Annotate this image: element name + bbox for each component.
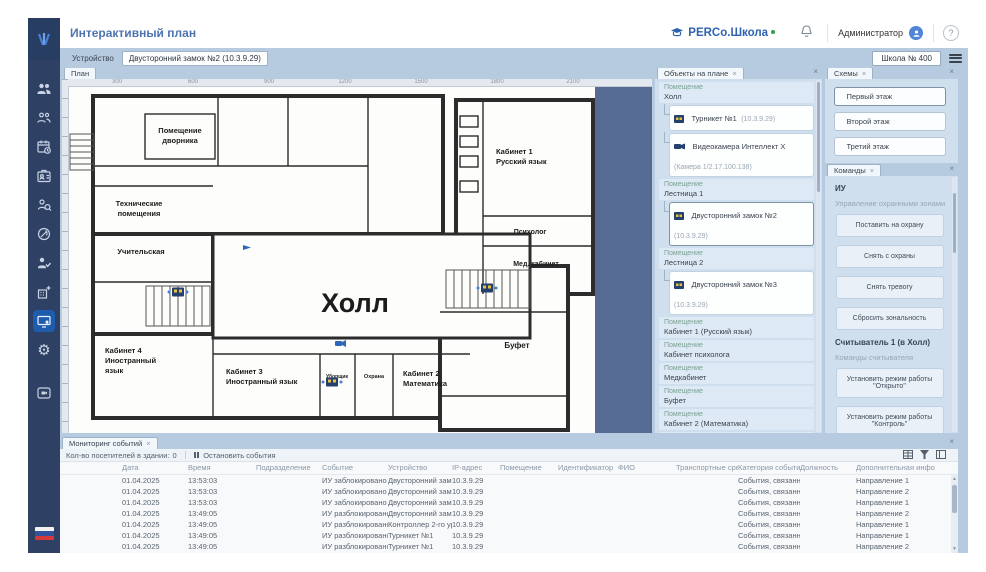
room-type: Помещение bbox=[664, 342, 809, 350]
page-title: Интерактивный план bbox=[70, 26, 196, 40]
cell-time: 13:49:05 bbox=[188, 530, 256, 541]
cell-transport bbox=[676, 475, 738, 486]
russian-flag-icon[interactable] bbox=[35, 527, 54, 540]
device-item-camera[interactable]: Видеокамера Интеллект Х (Камера 1/2.17.1… bbox=[669, 133, 814, 177]
device-address: (10.3.9.29) bbox=[674, 302, 708, 309]
cell-division bbox=[256, 530, 322, 541]
circle-slash-icon[interactable] bbox=[33, 223, 55, 245]
device-item-turnstile-1[interactable]: Турникет №1 (10.3.9.29) bbox=[669, 105, 814, 131]
cell-position bbox=[800, 519, 856, 530]
cell-date: 01.04.2025 bbox=[122, 519, 188, 530]
room-group[interactable]: Помещение Кабинет психолога bbox=[659, 340, 814, 361]
cell-division bbox=[256, 486, 322, 497]
sidebar: ⚙ bbox=[28, 18, 60, 553]
school-select-button[interactable]: Школа № 400 bbox=[872, 51, 941, 66]
cell-position bbox=[800, 541, 856, 552]
events-infobar: Кол-во посетителей в здании: 0 Остановит… bbox=[60, 449, 958, 462]
cell-position bbox=[800, 508, 856, 519]
table-row[interactable]: 01.04.2025 13:53:03 ИУ заблокировано Дву… bbox=[60, 497, 958, 508]
cell-transport bbox=[676, 530, 738, 541]
calendar-clock-icon[interactable] bbox=[33, 136, 55, 158]
ruler-tick: 900 bbox=[264, 79, 274, 86]
cell-room bbox=[500, 519, 558, 530]
col-header[interactable]: Категория событий bbox=[738, 462, 800, 474]
toolbar: Устройство Двусторонний замок №2 (10.3.9… bbox=[60, 48, 968, 68]
cell-device: Двусторонний замок №2 bbox=[388, 497, 452, 508]
status-dot bbox=[771, 30, 775, 34]
col-header[interactable]: Дополнительная инфо bbox=[856, 462, 958, 474]
cell-info: Направление 1 bbox=[856, 497, 958, 508]
person-search-icon[interactable] bbox=[33, 194, 55, 216]
close-icon[interactable]: × bbox=[949, 437, 954, 446]
tab-commands[interactable]: Команды × bbox=[827, 164, 881, 176]
help-button[interactable]: ? bbox=[943, 25, 959, 41]
cell-position bbox=[800, 486, 856, 497]
device-address: (10.3.9.29) bbox=[674, 233, 708, 240]
cell-identifier bbox=[558, 486, 618, 497]
mode-control-button[interactable]: Установить режим работы "Контроль" bbox=[836, 406, 944, 433]
cell-fio bbox=[618, 530, 676, 541]
cell-category: События, связанные с bbox=[738, 497, 800, 508]
device-name: Видеокамера Интеллект Х bbox=[692, 142, 785, 151]
room-label: Буфет bbox=[504, 341, 529, 350]
events-table: Дата Время Подразделение Событие Устройс… bbox=[60, 462, 958, 552]
cell-device: Турникет №1 bbox=[388, 541, 452, 552]
gear-icon[interactable]: ⚙ bbox=[33, 339, 55, 361]
room-type: Помещение bbox=[664, 250, 809, 258]
brand-label: PERCo.Школа bbox=[688, 27, 768, 39]
commands-panel: Команды × × ИУ Управление охранными зона… bbox=[825, 163, 958, 433]
room-group[interactable]: Помещение Кабинет 2 (Математика) bbox=[659, 409, 814, 430]
cell-identifier bbox=[558, 497, 618, 508]
scheme-floor-3[interactable]: Третий этаж bbox=[834, 137, 946, 156]
arm-button[interactable]: Поставить на охрану bbox=[836, 214, 944, 237]
room-group[interactable]: Помещение Холл bbox=[659, 82, 814, 103]
cell-time: 13:49:05 bbox=[188, 541, 256, 552]
device-address: (Камера 1/2.17.100.138) bbox=[674, 164, 752, 171]
cell-date: 01.04.2025 bbox=[122, 486, 188, 497]
room-type: Помещение bbox=[664, 84, 809, 92]
cell-category: События, связанные с bbox=[738, 508, 800, 519]
cell-position bbox=[800, 475, 856, 486]
bell-icon[interactable] bbox=[800, 24, 813, 43]
scroll-down-icon[interactable]: ▼ bbox=[951, 546, 958, 552]
video-frame-icon[interactable] bbox=[33, 382, 55, 404]
scroll-up-icon[interactable]: ▲ bbox=[951, 476, 958, 482]
close-icon[interactable]: × bbox=[949, 67, 954, 76]
col-header[interactable]: Транспортные средст bbox=[676, 462, 738, 474]
cell-time: 13:53:03 bbox=[188, 497, 256, 508]
room-group[interactable]: Помещение Буфет bbox=[659, 386, 814, 407]
room-group[interactable]: Помещение Кабинет охраны bbox=[659, 432, 814, 433]
cell-device: Двусторонний замок №2 bbox=[388, 508, 452, 519]
cell-event: ИУ заблокировано bbox=[322, 497, 388, 508]
turnstile-icon bbox=[674, 207, 684, 225]
device-item-lock-2-selected[interactable]: Двусторонний замок №2 (10.3.9.29) bbox=[669, 202, 814, 246]
cell-transport bbox=[676, 519, 738, 530]
monitor-user-icon[interactable] bbox=[33, 310, 55, 332]
cell-ip: 10.3.9.29 bbox=[452, 486, 500, 497]
close-icon[interactable]: × bbox=[949, 164, 954, 173]
cell-room bbox=[500, 530, 558, 541]
id-badge-icon[interactable] bbox=[33, 165, 55, 187]
cell-event: ИУ разблокировано bbox=[322, 530, 388, 541]
cell-category: События, связанные с bbox=[738, 541, 800, 552]
room-group[interactable]: Помещение Кабинет 1 (Русский язык) bbox=[659, 317, 814, 338]
room-label: Кабинет 1 bbox=[496, 147, 533, 156]
table-row[interactable]: 01.04.2025 13:49:05 ИУ разблокировано Ко… bbox=[60, 519, 958, 530]
ruler-tick: 600 bbox=[188, 79, 198, 86]
table-row[interactable]: 01.04.2025 13:53:03 ИУ заблокировано Дву… bbox=[60, 486, 958, 497]
tab-plan-label: План bbox=[71, 69, 89, 78]
room-name: Холл bbox=[664, 92, 809, 101]
cell-info: Направление 2 bbox=[856, 541, 958, 552]
room-label: Мед. кабинет bbox=[513, 260, 559, 268]
room-type: Помещение bbox=[664, 365, 809, 373]
cell-division bbox=[256, 519, 322, 530]
objects-scrollbar[interactable] bbox=[816, 80, 821, 432]
horizontal-ruler: 300 600 900 1200 1500 1800 2100 bbox=[68, 79, 652, 87]
cell-room bbox=[500, 497, 558, 508]
cell-category: События, связанные с bbox=[738, 530, 800, 541]
turnstile-icon bbox=[674, 110, 684, 128]
cell-event: ИУ разблокировано bbox=[322, 508, 388, 519]
room-name: Буфет bbox=[664, 396, 809, 405]
brand[interactable]: PERCo.Школа bbox=[670, 26, 778, 41]
col-header[interactable]: Дата bbox=[122, 462, 188, 474]
room-type: Помещение bbox=[664, 319, 809, 327]
room-type: Помещение bbox=[664, 411, 809, 419]
cell-event: ИУ разблокировано bbox=[322, 541, 388, 552]
cell-category: События, связанные с bbox=[738, 486, 800, 497]
close-icon[interactable]: × bbox=[146, 439, 150, 448]
cell-event: ИУ заблокировано bbox=[322, 486, 388, 497]
tab-commands-label: Команды bbox=[834, 166, 866, 175]
employees-icon[interactable] bbox=[33, 78, 55, 100]
scheme-floor-2[interactable]: Второй этаж bbox=[834, 112, 946, 131]
room-type: Помещение bbox=[664, 388, 809, 396]
room-label: Кабинет 4 bbox=[105, 346, 142, 355]
room-name: Кабинет 2 (Математика) bbox=[664, 419, 809, 428]
close-icon[interactable]: × bbox=[813, 67, 818, 76]
objects-list: Помещение Холл Турникет №1 (10.3.9.29) В… bbox=[655, 79, 822, 433]
user-menu[interactable]: Администратор bbox=[828, 26, 933, 40]
cell-info: Направление 2 bbox=[856, 508, 958, 519]
cell-room bbox=[500, 541, 558, 552]
cell-identifier bbox=[558, 541, 618, 552]
cell-ip: 10.3.9.29 bbox=[452, 519, 500, 530]
cell-time: 13:49:05 bbox=[188, 508, 256, 519]
close-icon[interactable]: × bbox=[862, 69, 866, 78]
room-name: Лестница 2 bbox=[664, 258, 809, 267]
ruler-tick: 300 bbox=[112, 79, 122, 86]
room-group[interactable]: Помещение Лестница 1 bbox=[659, 179, 814, 200]
cell-transport bbox=[676, 497, 738, 508]
cell-event: ИУ разблокировано bbox=[322, 519, 388, 530]
cell-device: Двусторонний замок №2 bbox=[388, 486, 452, 497]
cell-identifier bbox=[558, 530, 618, 541]
plan-canvas[interactable]: Помещение дворника Технические помещения… bbox=[62, 79, 652, 433]
room-group[interactable]: Помещение Лестница 2 bbox=[659, 248, 814, 269]
device-label: Устройство bbox=[72, 54, 114, 63]
cell-time: 13:53:03 bbox=[188, 486, 256, 497]
close-icon[interactable]: × bbox=[870, 166, 874, 175]
room-label: Психолог bbox=[514, 229, 547, 236]
cell-fio bbox=[618, 541, 676, 552]
cell-division bbox=[256, 508, 322, 519]
turnstile-icon bbox=[674, 276, 684, 294]
person-check-icon[interactable] bbox=[33, 252, 55, 274]
cell-ip: 10.3.9.29 bbox=[452, 497, 500, 508]
room-label: Кабинет 2 bbox=[403, 369, 440, 378]
cell-info: Направление 1 bbox=[856, 475, 958, 486]
room-label: язык bbox=[105, 366, 124, 375]
cell-device: Турникет №1 bbox=[388, 530, 452, 541]
cell-time: 13:53:03 bbox=[188, 475, 256, 486]
tab-schemes-label: Схемы bbox=[834, 69, 858, 78]
room-group[interactable]: Помещение Медкабинет bbox=[659, 363, 814, 384]
col-header[interactable]: Помещение bbox=[500, 462, 558, 474]
camera-icon bbox=[674, 138, 685, 156]
cell-fio bbox=[618, 508, 676, 519]
building-plus-icon[interactable] bbox=[33, 281, 55, 303]
tab-events-label: Мониторинг событий bbox=[69, 439, 142, 448]
col-header[interactable]: Идентификатор bbox=[558, 462, 618, 474]
table-row[interactable]: 01.04.2025 13:49:05 ИУ разблокировано Ту… bbox=[60, 530, 958, 541]
device-name: Турникет №1 bbox=[691, 114, 736, 123]
cell-fio bbox=[618, 519, 676, 530]
close-icon[interactable]: × bbox=[732, 69, 736, 78]
floor-plan[interactable]: Помещение дворника Технические помещения… bbox=[68, 86, 595, 433]
ruler-tick: 1500 bbox=[414, 79, 427, 86]
cell-transport bbox=[676, 508, 738, 519]
room-label: Иностранный bbox=[105, 356, 156, 365]
reader-label: Команды считывателя bbox=[835, 353, 946, 362]
visitors-count: 0 bbox=[173, 451, 177, 460]
cell-device: Двусторонний замок №2 bbox=[388, 475, 452, 486]
table-row[interactable]: 01.04.2025 13:49:05 ИУ разблокировано Дв… bbox=[60, 508, 958, 519]
cell-ip: 10.3.9.29 bbox=[452, 541, 500, 552]
visitors-icon[interactable] bbox=[33, 107, 55, 129]
camera-marker[interactable] bbox=[335, 340, 346, 347]
tab-plan[interactable]: План bbox=[64, 67, 96, 79]
cell-position bbox=[800, 530, 856, 541]
cell-ip: 10.3.9.29 bbox=[452, 475, 500, 486]
plan-panel: План bbox=[62, 66, 652, 433]
hall-label: Холл bbox=[321, 288, 389, 318]
menu-icon[interactable] bbox=[949, 54, 962, 63]
cell-room bbox=[500, 475, 558, 486]
pause-icon bbox=[194, 452, 200, 458]
graduation-cap-icon bbox=[670, 26, 684, 41]
cell-category: События, связанные с bbox=[738, 519, 800, 530]
visitors-label: Кол-во посетителей в здании: bbox=[66, 451, 170, 460]
cell-transport bbox=[676, 541, 738, 552]
cell-fio bbox=[618, 475, 676, 486]
objects-panel: Объекты на плане × × Помещение Холл Турн… bbox=[655, 66, 822, 433]
cell-division bbox=[256, 475, 322, 486]
col-header[interactable]: IP-адрес bbox=[452, 462, 500, 474]
table-row[interactable]: 01.04.2025 13:53:03 ИУ заблокировано Дву… bbox=[60, 475, 958, 486]
device-address: (10.3.9.29) bbox=[741, 116, 775, 123]
cell-info: Направление 1 bbox=[856, 530, 958, 541]
cell-identifier bbox=[558, 519, 618, 530]
events-panel: Мониторинг событий × × Кол-во посетителе… bbox=[60, 436, 958, 553]
cell-device: Контроллер 2-го уров bbox=[388, 519, 452, 530]
room-label: Русский язык bbox=[496, 157, 547, 166]
user-name: Администратор bbox=[838, 28, 903, 38]
vertical-ruler bbox=[62, 79, 69, 433]
tab-schemes[interactable]: Схемы × bbox=[827, 67, 873, 79]
room-name: Лестница 1 bbox=[664, 189, 809, 198]
device-name: Двусторонний замок №3 bbox=[691, 280, 776, 289]
cell-date: 01.04.2025 bbox=[122, 541, 188, 552]
cell-transport bbox=[676, 486, 738, 497]
col-header[interactable]: Должность bbox=[800, 462, 856, 474]
table-view-icon[interactable] bbox=[903, 450, 913, 461]
room-label: помещения bbox=[118, 209, 161, 218]
device-chip[interactable]: Двусторонний замок №2 (10.3.9.29) bbox=[122, 51, 268, 66]
cell-fio bbox=[618, 497, 676, 508]
col-header[interactable]: ФИО bbox=[618, 462, 676, 474]
table-row[interactable]: 01.04.2025 13:49:05 ИУ разблокировано Ту… bbox=[60, 541, 958, 552]
tab-objects-label: Объекты на плане bbox=[664, 69, 728, 78]
room-label: Помещение bbox=[158, 126, 201, 135]
cell-division bbox=[256, 497, 322, 508]
cell-position bbox=[800, 497, 856, 508]
cell-info: Направление 2 bbox=[856, 486, 958, 497]
tab-objects[interactable]: Объекты на плане × bbox=[657, 67, 744, 79]
commands-scrollbar[interactable] bbox=[952, 177, 957, 432]
zones-label: Управление охранными зонами bbox=[835, 199, 946, 208]
cell-date: 01.04.2025 bbox=[122, 497, 188, 508]
ruler-tick: 1200 bbox=[338, 79, 351, 86]
room-name: Кабинет 1 (Русский язык) bbox=[664, 327, 809, 336]
room-label: Иностранный язык bbox=[226, 377, 298, 386]
ruler-tick: 2100 bbox=[566, 79, 579, 86]
cell-identifier bbox=[558, 475, 618, 486]
reader-heading: Считыватель 1 (в Холл) bbox=[835, 338, 946, 347]
cell-time: 13:49:05 bbox=[188, 519, 256, 530]
cell-ip: 10.3.9.29 bbox=[452, 530, 500, 541]
schemes-panel: Схемы × × Первый этаж Второй этаж Третий… bbox=[825, 66, 958, 163]
cell-fio bbox=[618, 486, 676, 497]
header: Интерактивный план PERCo.Школа bbox=[60, 18, 968, 48]
cell-date: 01.04.2025 bbox=[122, 530, 188, 541]
scheme-floor-1[interactable]: Первый этаж bbox=[834, 87, 946, 106]
events-rows: 01.04.2025 13:53:03 ИУ заблокировано Дву… bbox=[60, 475, 958, 552]
room-label: Математика bbox=[403, 379, 448, 388]
right-column: Схемы × × Первый этаж Второй этаж Третий… bbox=[825, 66, 958, 433]
device-item-lock-3[interactable]: Двусторонний замок №3 (10.3.9.29) bbox=[669, 271, 814, 315]
columns-icon[interactable] bbox=[936, 450, 946, 461]
tab-events[interactable]: Мониторинг событий × bbox=[62, 437, 158, 449]
stop-events-button[interactable]: Остановить события bbox=[203, 451, 275, 460]
avatar bbox=[909, 26, 923, 40]
cell-date: 01.04.2025 bbox=[122, 475, 188, 486]
cell-event: ИУ заблокировано bbox=[322, 475, 388, 486]
events-table-header: Дата Время Подразделение Событие Устройс… bbox=[60, 462, 958, 475]
cell-identifier bbox=[558, 508, 618, 519]
room-label: Учительская bbox=[117, 247, 164, 256]
perco-logo-icon bbox=[28, 18, 60, 60]
disarm-button[interactable]: Снять с охраны bbox=[836, 245, 944, 268]
room-label: Охрана bbox=[364, 374, 385, 380]
reset-zone-button[interactable]: Сбросить зональность bbox=[836, 307, 944, 330]
col-header[interactable]: Время bbox=[188, 462, 256, 474]
mode-open-button[interactable]: Установить режим работы "Открыто" bbox=[836, 368, 944, 398]
room-name: Медкабинет bbox=[664, 373, 809, 382]
events-scrollbar[interactable]: ▲ ▼ bbox=[951, 475, 958, 553]
room-type: Помещение bbox=[664, 181, 809, 189]
room-label: Кабинет 3 bbox=[226, 367, 263, 376]
device-name: Двусторонний замок №2 bbox=[691, 211, 776, 220]
cell-room bbox=[500, 508, 558, 519]
cell-date: 01.04.2025 bbox=[122, 508, 188, 519]
col-header[interactable]: Событие bbox=[322, 462, 388, 474]
filter-icon[interactable] bbox=[920, 450, 929, 461]
room-label: дворника bbox=[162, 136, 198, 145]
clear-alarm-button[interactable]: Снять тревогу bbox=[836, 276, 944, 299]
room-label: Технические bbox=[116, 199, 163, 208]
cell-ip: 10.3.9.29 bbox=[452, 508, 500, 519]
iu-heading: ИУ bbox=[835, 184, 946, 193]
ruler-tick: 1800 bbox=[490, 79, 503, 86]
cell-room bbox=[500, 486, 558, 497]
col-header[interactable]: Устройство bbox=[388, 462, 452, 474]
cell-info: Направление 1 bbox=[856, 519, 958, 530]
col-header[interactable]: Подразделение bbox=[256, 462, 322, 474]
cell-division bbox=[256, 541, 322, 552]
room-name: Кабинет психолога bbox=[664, 350, 809, 359]
app-window: ⚙ Интерактивный план PER bbox=[28, 18, 968, 553]
cell-category: События, связанные с bbox=[738, 475, 800, 486]
